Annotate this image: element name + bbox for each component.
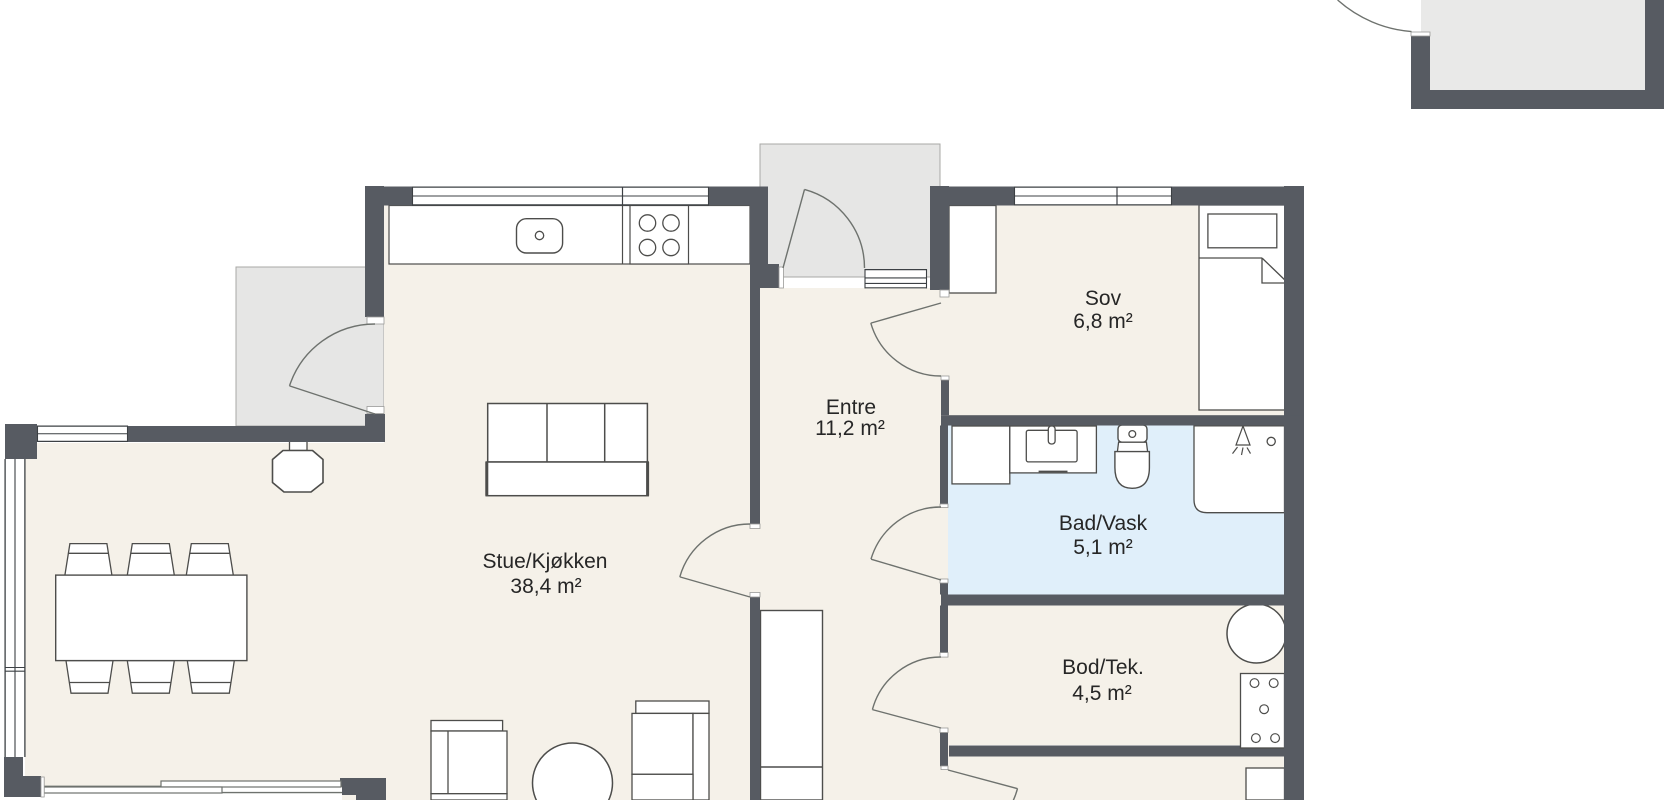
svg-text:Entre: Entre (826, 396, 876, 419)
svg-text:38,4 m²: 38,4 m² (510, 575, 581, 598)
svg-text:6,8 m²: 6,8 m² (1073, 310, 1133, 333)
svg-text:Bod/Tek.: Bod/Tek. (1062, 656, 1144, 679)
svg-text:Stue/Kjøkken: Stue/Kjøkken (483, 550, 608, 573)
svg-text:Bad/Vask: Bad/Vask (1059, 512, 1148, 535)
svg-text:4,5 m²: 4,5 m² (1072, 682, 1132, 705)
svg-text:11,2 m²: 11,2 m² (815, 417, 885, 440)
svg-text:5,1 m²: 5,1 m² (1073, 536, 1133, 559)
svg-text:Sov: Sov (1085, 287, 1122, 310)
